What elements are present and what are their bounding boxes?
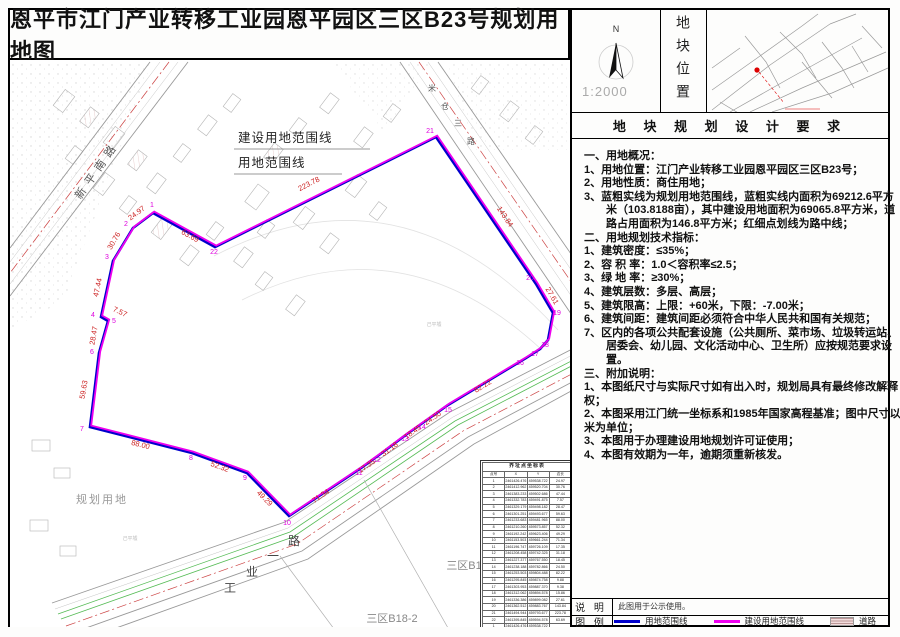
coord-table-row: 192461336.386459899.08227.61 [483, 597, 571, 604]
point-number: 22 [210, 249, 218, 256]
coord-table-row: 172461303.953459887.3709.38 [483, 584, 571, 591]
coord-table-row: 222461395.845459594.57863.69 [483, 617, 571, 624]
requirement-line: 米（103.8188亩），其中建设用地面积为69065.8平方米，道 [584, 204, 898, 218]
requirement-line: 居委会、幼儿园、文化活动中心、卫生所）应按规范要求设 [584, 340, 898, 354]
road-name-label: 仓 [441, 101, 449, 111]
point-number: 3 [105, 254, 109, 261]
requirement-line: 4、本图有效期为一年，逾期须重新核发。 [584, 449, 898, 463]
coord-table-row: 52461329.179459498.18228.47 [483, 504, 571, 511]
requirement-line: 7、区内的各项公共配套设施（公共厕所、菜市场、垃圾转运站、 [584, 327, 898, 341]
legend-item-label: 建设用地范围线 [745, 615, 805, 627]
boundary-leader-label: 建设用地范围线 [238, 130, 333, 145]
dimension-label: 63.69 [180, 227, 201, 244]
area-label: 己平墟 [122, 535, 137, 542]
area-label: 规划用地 [76, 492, 128, 506]
requirement-line: 4、建筑层数：多层、高层； [584, 286, 898, 300]
point-number: 16 [516, 360, 524, 367]
road-name-label: 工 [224, 581, 236, 595]
point-number: 12 [373, 457, 381, 464]
requirement-line: 3、绿 地 率：≥30%； [584, 272, 898, 286]
legend-items: 用地范围线建设用地范围线道路 [614, 615, 890, 627]
road-name-label: 三 [454, 119, 462, 128]
requirement-line: 3、蓝粗实线为规划用地范围线，蓝粗实线内面积为69212.6平方 [584, 191, 898, 205]
boundary-leader-label: 用地范围线 [238, 156, 306, 170]
coord-table-header: 点号XY边长 [483, 471, 571, 478]
coord-table-row: 122461208.458459742.32531.18 [483, 551, 571, 558]
dimension-label: 49.29 [255, 488, 275, 508]
road-name-label: 一 [267, 549, 279, 563]
point-number: 2 [124, 221, 128, 228]
road-name-label: 业 [246, 565, 258, 579]
requirement-line: 5、建筑限高：上限：+60米，下限：-7.00米； [584, 300, 898, 314]
section-title: 地块位置 [673, 15, 693, 107]
boundary-leader-labels: 建设用地范围线用地范围线 [234, 130, 370, 174]
magenta-line-symbol [714, 620, 740, 623]
requirement-line: 6、建筑间距：建筑间距必须符合中华人民共和国有关规范； [584, 313, 898, 327]
legend-label: 图 例 [574, 615, 608, 627]
plan-sheet: 恩平市江门产业转移工业园恩平园区三区B23号规划用地图 [0, 0, 900, 637]
requirement-line: 3、本图用于办理建设用地规划许可证使用； [584, 435, 898, 449]
coord-table-row: 212461494.944459793.677223.78 [483, 610, 571, 617]
point-number: 7 [80, 426, 84, 433]
note-text: 此图用于公示使用。 [618, 601, 690, 612]
point-number: 19 [553, 310, 561, 317]
point-number: 6 [90, 349, 94, 356]
point-number: 17 [531, 351, 539, 358]
requirement-line: 1、用地位置：江门产业转移工业园恩平园区三区B23号； [584, 164, 898, 178]
header-bottom-rule [570, 138, 890, 139]
minimap-streets [712, 14, 888, 112]
coord-table-row: 92461192.242459623.40649.29 [483, 531, 571, 538]
dimension-labels: 24.9730.7647.447.5728.4759.6388.0052.324… [77, 175, 560, 509]
coord-table-row: 12461426.476459538.72224.97 [483, 478, 571, 485]
coord-table-row: 152461253.503459804.48882.22 [483, 570, 571, 577]
point-number: 18 [541, 342, 549, 349]
road-symbol [830, 617, 854, 626]
location-minimap [706, 10, 890, 112]
point-number: 11 [355, 470, 362, 477]
point-number: 14 [418, 424, 426, 431]
page-title: 恩平市江门产业转移工业园恩平园区三区B23号规划用地图 [10, 2, 568, 66]
point-number: 1 [150, 202, 154, 209]
construction-boundary-magenta [91, 136, 554, 515]
legend-item: 建设用地范围线 [714, 615, 805, 627]
requirement-line: 2、本图采用江门统一坐标系和1985年国家高程基准；图中尺寸以 [584, 408, 898, 422]
dimension-label: 28.47 [87, 326, 99, 346]
parcel-boundary [90, 136, 554, 516]
legend-item: 用地范围线 [614, 615, 688, 627]
requirement-line: 置。 [584, 354, 898, 368]
coord-table-row: 32461383.233459502.68647.44 [483, 491, 571, 498]
requirement-line: 米为单位； [584, 422, 898, 436]
requirement-line: 2、容 积 率：1.0＜容积率≤2.5； [584, 259, 898, 273]
note-row: 说 明 此图用于公示使用。 [570, 598, 890, 615]
legend-item-label: 用地范围线 [645, 615, 688, 627]
blue-line-symbol [614, 620, 640, 623]
scale-label: 1:2000 [582, 84, 628, 99]
requirements-header: 地 块 规 划 设 计 要 求 [570, 112, 890, 138]
legend-item: 道路 [830, 615, 876, 627]
sheet-title-box: 恩平市江门产业转移工业园恩平园区三区B23号规划用地图 [10, 10, 570, 60]
map-area: 建设用地范围线用地范围线 24.9730.7647.447.5728.4759.… [10, 60, 570, 627]
dimension-label: 223.78 [297, 175, 322, 193]
north-label: N [572, 24, 660, 34]
coord-table-row: 62461301.251459493.67759.63 [483, 511, 571, 518]
area-label: 三区B18-2 [366, 613, 417, 625]
point-number: 15 [444, 407, 452, 414]
requirement-line: 1、建筑密度：≤35%； [584, 245, 898, 259]
road-name-label: 米 [428, 83, 436, 93]
coordinate-table-grid: 界址点坐标表点号XY边长12461426.476459538.72224.972… [482, 462, 570, 627]
dimension-label: 59.63 [77, 380, 89, 400]
point-number: 10 [283, 520, 291, 527]
coord-table-row: 82461210.260459573.85752.32 [483, 524, 571, 531]
point-number: 4 [91, 312, 95, 319]
coord-table-row: 12461426.476459538.722 [483, 623, 571, 627]
area-label: 己平墟 [426, 321, 441, 328]
note-label: 说 明 [574, 598, 608, 615]
requirement-line: 三、附加说明： [584, 368, 898, 382]
point-number: 8 [189, 455, 193, 462]
point-number: 5 [112, 318, 116, 325]
coord-table-row: 102461153.503459661.24471.34 [483, 537, 571, 544]
area-labels: 规划用地三区B16-1三区B18-2己平墟己平墟 [76, 321, 498, 625]
requirement-line: 权； [584, 395, 898, 409]
coord-table-row: 112461196.747459726.10917.35 [483, 544, 571, 551]
requirement-line: 1、本图纸尺寸与实际尺寸如有出入时，规划局具有最终修改解释 [584, 381, 898, 395]
dimension-label: 7.57 [112, 305, 129, 319]
requirement-line: 一、用地概况： [584, 150, 898, 164]
legend-row: 图 例 用地范围线建设用地范围线道路 [570, 615, 890, 627]
dimension-label: 47.44 [91, 277, 104, 297]
coord-table-row: 142461238.188459782.86624.50 [483, 564, 571, 571]
requirement-line: 二、用地规划技术指标： [584, 232, 898, 246]
requirement-line: 路占用面积为146.8平方米；红细点划线为路中线； [584, 218, 898, 232]
dimension-label: 52.32 [209, 459, 230, 474]
point-number: 21 [426, 128, 434, 135]
coord-table-row: 42461332.783459491.8757.57 [483, 498, 571, 505]
road-name-label: 路 [467, 136, 475, 146]
requirements-text: 一、用地概况：1、用地位置：江门产业转移工业园恩平园区三区B23号；2、用地性质… [572, 142, 900, 463]
coord-table-row: 132461227.377459767.55018.45 [483, 557, 571, 564]
coordinate-table: 界址点坐标表点号XY边长12461426.476459538.72224.972… [480, 460, 570, 627]
dimension-label: 82.22 [472, 377, 493, 394]
coord-table-row: 162461295.845459874.7589.88 [483, 577, 571, 584]
coord-table-row: 22461412.962459520.70430.76 [483, 484, 571, 491]
coord-table-row: 72461233.683459481.96588.00 [483, 517, 571, 524]
coord-table-title: 界址点坐标表 [483, 463, 571, 472]
point-number: 13 [401, 436, 409, 443]
legend-item-label: 道路 [859, 615, 876, 627]
site-location-dot [754, 67, 759, 72]
coord-table-row: 182461312.062459894.57815.86 [483, 590, 571, 597]
road-name-label: 路 [288, 533, 300, 548]
requirement-line: 2、用地性质：商住用地； [584, 177, 898, 191]
section-title-cell: 地块位置 [660, 10, 706, 112]
location-minimap-svg [706, 10, 890, 112]
north-arrow-cell: N 1:2000 [572, 10, 660, 112]
point-number: 20 [526, 275, 534, 282]
point-number: 9 [243, 475, 247, 482]
coord-table-row: 202461362.512459883.767143.84 [483, 604, 571, 611]
